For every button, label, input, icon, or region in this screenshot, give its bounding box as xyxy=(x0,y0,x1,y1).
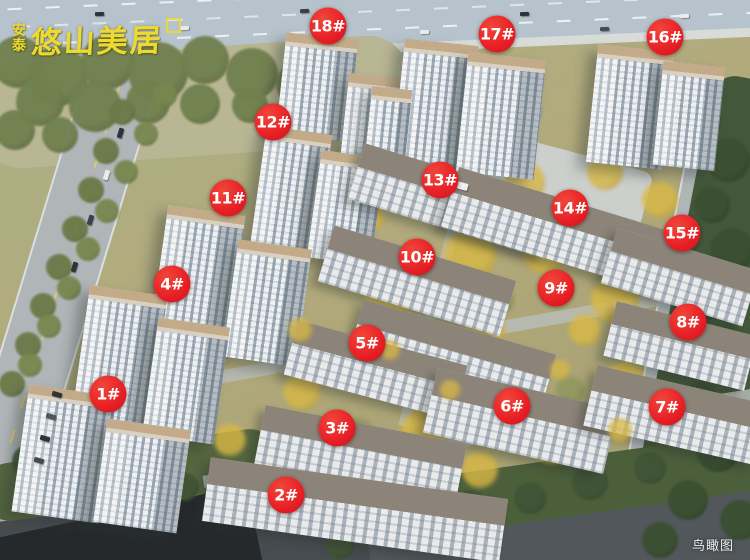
tree-blob xyxy=(180,84,220,124)
building-tower xyxy=(93,419,191,534)
tree-blob xyxy=(634,452,666,484)
building-marker-11[interactable]: 11# xyxy=(210,180,247,217)
car xyxy=(420,30,429,34)
building-marker-17[interactable]: 17# xyxy=(479,16,516,53)
tree-blob xyxy=(57,276,81,300)
car xyxy=(520,12,529,16)
building-marker-7[interactable]: 7# xyxy=(649,389,686,426)
tree-blob xyxy=(462,452,498,488)
building-marker-12[interactable]: 12# xyxy=(255,104,292,141)
building-marker-14[interactable]: 14# xyxy=(552,190,589,227)
tree-blob xyxy=(18,353,42,377)
building-marker-10[interactable]: 10# xyxy=(399,239,436,276)
tree-blob xyxy=(608,418,632,442)
logo-project-name: 悠山美居 xyxy=(29,15,164,62)
building-marker-15[interactable]: 15# xyxy=(664,215,701,252)
building-marker-6[interactable]: 6# xyxy=(494,388,531,425)
car xyxy=(680,14,689,18)
building-marker-16[interactable]: 16# xyxy=(647,19,684,56)
building-tower xyxy=(653,61,726,171)
car xyxy=(600,27,609,31)
tree-blob xyxy=(668,480,708,520)
tree-blob xyxy=(642,182,678,218)
tree-blob xyxy=(550,360,570,380)
tree-blob xyxy=(114,160,138,184)
building-marker-5[interactable]: 5# xyxy=(349,325,386,362)
tree-blob xyxy=(569,314,601,346)
tree-blob xyxy=(0,371,25,397)
car xyxy=(300,9,309,13)
tree-blob xyxy=(42,117,78,153)
tree-blob xyxy=(514,482,546,514)
building-marker-1[interactable]: 1# xyxy=(90,376,127,413)
aerial-rendering: 1#2#3#4#5#6#7#8#9#10#11#12#13#14#15#16#1… xyxy=(0,0,750,560)
tree-blob xyxy=(642,522,678,558)
tree-blob xyxy=(181,36,229,84)
building-marker-18[interactable]: 18# xyxy=(310,8,347,45)
view-watermark: 鸟瞰图 xyxy=(692,535,734,554)
building-marker-9[interactable]: 9# xyxy=(538,270,575,307)
tree-blob xyxy=(440,380,460,400)
logo-seal-icon xyxy=(166,18,181,33)
building-marker-4[interactable]: 4# xyxy=(154,266,191,303)
logo-brand-vertical: 安泰 xyxy=(12,24,27,55)
building-marker-8[interactable]: 8# xyxy=(670,304,707,341)
tree-blob xyxy=(78,177,104,203)
building-marker-13[interactable]: 13# xyxy=(422,162,459,199)
tree-blob xyxy=(109,99,135,125)
tree-blob xyxy=(93,138,119,164)
building-marker-2[interactable]: 2# xyxy=(268,477,305,514)
tree-blob xyxy=(134,122,158,146)
tree-blob xyxy=(153,83,177,107)
tree-blob xyxy=(76,237,100,261)
tree-blob xyxy=(288,318,312,342)
project-logo: 安泰 悠山美居 xyxy=(12,16,181,61)
tree-blob xyxy=(95,199,119,223)
car xyxy=(180,26,189,30)
tree-blob xyxy=(694,187,730,223)
tree-blob xyxy=(214,424,246,456)
building-tower xyxy=(456,52,546,179)
building-marker-3[interactable]: 3# xyxy=(319,410,356,447)
